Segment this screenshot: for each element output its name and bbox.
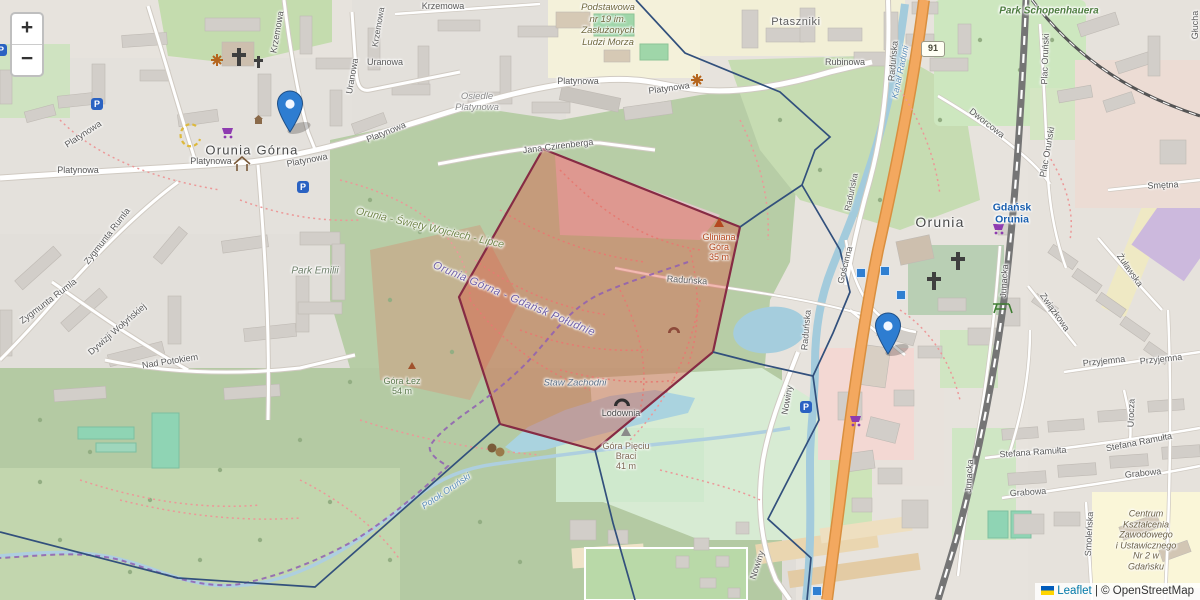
attribution-bar: Leaflet | © OpenStreetMap (1035, 583, 1200, 600)
map-tiles (0, 0, 1200, 600)
zoom-control: + − (10, 12, 44, 77)
transit-stop-icon (896, 290, 906, 300)
transit-stop-icon (880, 266, 890, 276)
zoom-in-button[interactable]: + (12, 14, 42, 45)
transit-stop-icon (856, 268, 866, 278)
attribution-separator: | (1095, 585, 1098, 597)
map-canvas[interactable]: P P P P 91 Krzemowa Krzemowa Krzemowa Ur… (0, 0, 1200, 600)
osm-copyright[interactable]: © OpenStreetMap (1101, 585, 1194, 597)
transit-stop-icon (812, 586, 822, 596)
zoom-out-button[interactable]: − (12, 45, 42, 75)
ukraine-flag-icon (1041, 586, 1054, 595)
leaflet-link[interactable]: Leaflet (1057, 585, 1092, 597)
